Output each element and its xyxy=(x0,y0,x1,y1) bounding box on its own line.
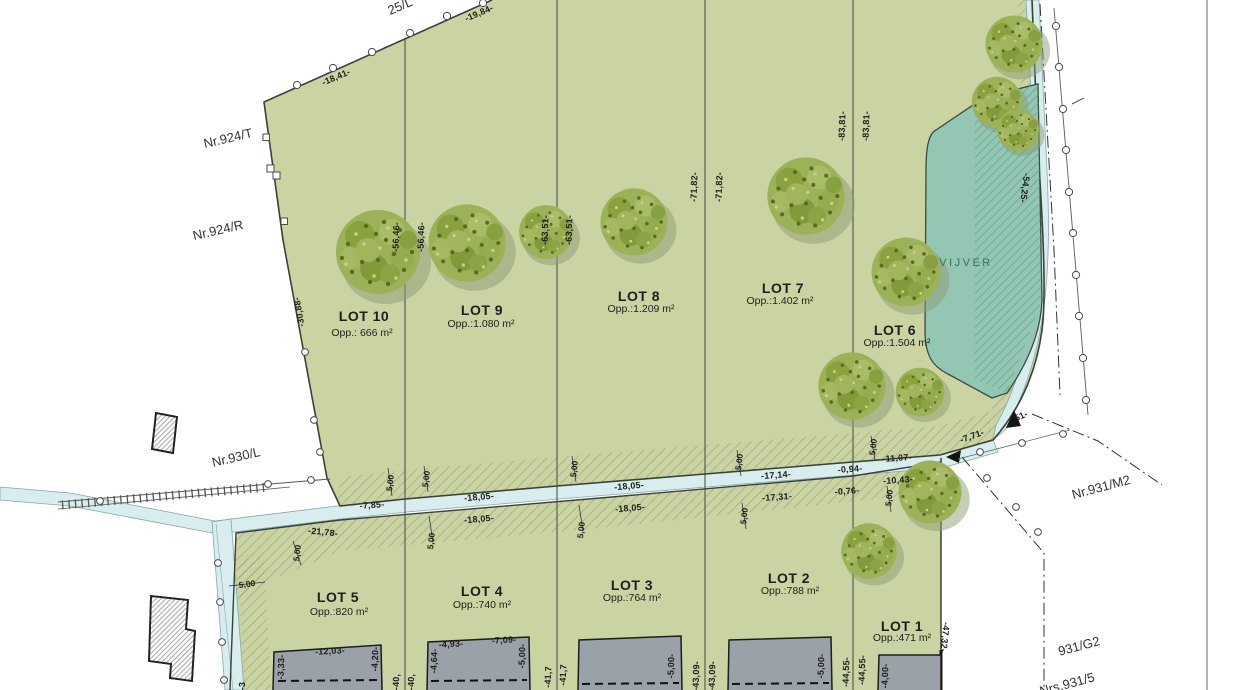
lot-9-name: LOT 9 xyxy=(461,302,503,318)
tick-label: 5,00 xyxy=(425,532,437,550)
parcel-label-931G2: 931/G2 xyxy=(1056,633,1101,659)
lot-6-area: Opp.:1.504 m² xyxy=(863,337,930,349)
dim-label: -18,05- xyxy=(615,502,646,515)
dim-label: -47,32- xyxy=(938,622,951,653)
dim-label: -4,93- xyxy=(438,638,463,649)
dim-label: -56,46- xyxy=(390,222,401,252)
dim-label: -7,71- xyxy=(959,427,986,445)
lot-3-area: Opp.:764 m² xyxy=(603,592,661,604)
lot-2-area: Opp.:788 m² xyxy=(761,585,819,597)
dim-label: -63,51- xyxy=(539,215,550,245)
dim-label: -43,09- xyxy=(690,661,701,690)
parcel-label-931-5: Nrs.931/5 xyxy=(1038,669,1096,690)
dim-label: -21,78- xyxy=(308,525,339,538)
dim-label: -7,09- xyxy=(491,634,516,645)
dim-label: -17,14- xyxy=(761,469,792,481)
dim-label: -7,85- xyxy=(359,499,384,511)
lot-8-area: Opp.:1.209 m² xyxy=(607,303,674,315)
dim-label: -0,76- xyxy=(834,485,859,497)
lot-5-area: Opp.:820 m² xyxy=(310,606,368,618)
parcel-label-924R: Nr.924/R xyxy=(191,217,244,243)
lot-3-name: LOT 3 xyxy=(611,577,653,593)
dim-label: -43,09- xyxy=(706,661,717,690)
dim-label: -71,82- xyxy=(713,172,724,202)
lot-9-area: Opp.:1.080 m² xyxy=(447,318,514,330)
lot-2-name: LOT 2 xyxy=(768,570,810,586)
lot-10-area: Opp.: 666 m² xyxy=(331,327,392,339)
lot-4-name: LOT 4 xyxy=(461,583,503,599)
dim-label: -40, xyxy=(391,674,402,690)
dim-label: -30,88- xyxy=(291,296,306,327)
dim-label: -83,81- xyxy=(836,111,847,141)
dim-label: -17,31- xyxy=(762,491,793,503)
dim-label: -4,20- xyxy=(370,646,381,671)
dim-label: -44,55- xyxy=(856,655,867,685)
dim-label: -12,03- xyxy=(315,645,345,657)
dim-label: -11,07- xyxy=(882,452,912,464)
dim-label: -5,00- xyxy=(517,643,528,668)
parcel-label-931M2: Nr.931/M2 xyxy=(1070,472,1132,502)
lot-7-area: Opp.:1.402 m² xyxy=(746,295,813,307)
lot-7-name: LOT 7 xyxy=(762,280,804,296)
dim-label: -41,7 xyxy=(558,664,569,686)
dim-label: -3 xyxy=(237,682,247,690)
parcel-label-930L: Nr.930/L xyxy=(210,444,261,470)
dim-label: -83,81- xyxy=(860,111,871,141)
dim-label: -10,43- xyxy=(883,474,914,486)
dim-label: -56,46- xyxy=(415,222,426,252)
dim-label: -41,7 xyxy=(543,666,554,688)
lot-4-area: Opp.:740 m² xyxy=(453,599,511,611)
tick-label: 5,00 xyxy=(384,474,396,492)
tick-label: 5,00 xyxy=(738,507,750,525)
lot-6-name: LOT 6 xyxy=(874,322,916,338)
tick-label: 5,00 xyxy=(420,470,432,488)
tick-label: 5,00 xyxy=(733,453,745,471)
dim-label: -18,05- xyxy=(464,513,495,526)
dim-label: -18,05- xyxy=(614,480,645,493)
lot-5-name: LOT 5 xyxy=(317,589,359,605)
dim-label: -63,51- xyxy=(563,215,574,245)
dim-label: -44,55- xyxy=(840,657,851,687)
tick-label: 5,00 xyxy=(575,521,587,539)
dim-label: -4,00- xyxy=(880,663,891,688)
dim-label: -3,33- xyxy=(276,654,287,679)
lot-10-name: LOT 10 xyxy=(339,308,389,324)
tick-label: 5,00 xyxy=(867,438,879,456)
dim-label: 51- xyxy=(1013,409,1030,424)
tick-label: 5,00 xyxy=(568,460,580,478)
parcel-label-925L: 25/L xyxy=(385,0,414,18)
tick-label: 5,00 xyxy=(883,489,895,507)
dim-label: -19,84- xyxy=(463,3,494,24)
map-labels: LOT 10 Opp.: 666 m² LOT 9 Opp.:1.080 m² … xyxy=(0,0,1240,690)
dim-label: -0,94- xyxy=(837,463,862,475)
dim-label: -4,64- xyxy=(429,648,440,673)
parcel-label-924T: Nr.924/T xyxy=(202,125,254,151)
lot-8-name: LOT 8 xyxy=(618,288,660,304)
tick-label: 5,00 xyxy=(291,544,303,562)
lot-1-area: Opp.:471 m² xyxy=(873,632,931,644)
dim-label: -5,00- xyxy=(666,653,677,678)
dim-label: -5,00- xyxy=(816,653,827,678)
tick-label: 5,00 xyxy=(238,578,256,590)
dim-label: -40, xyxy=(406,674,417,690)
dim-label: -71,82- xyxy=(688,172,699,202)
dim-label: -54,25- xyxy=(1018,173,1032,204)
pond-label: VIJVER xyxy=(939,257,993,269)
dim-label: -18,05- xyxy=(464,491,495,504)
dim-label: -18,41- xyxy=(320,67,351,88)
site-plan: LOT 10 Opp.: 666 m² LOT 9 Opp.:1.080 m² … xyxy=(0,0,1240,690)
